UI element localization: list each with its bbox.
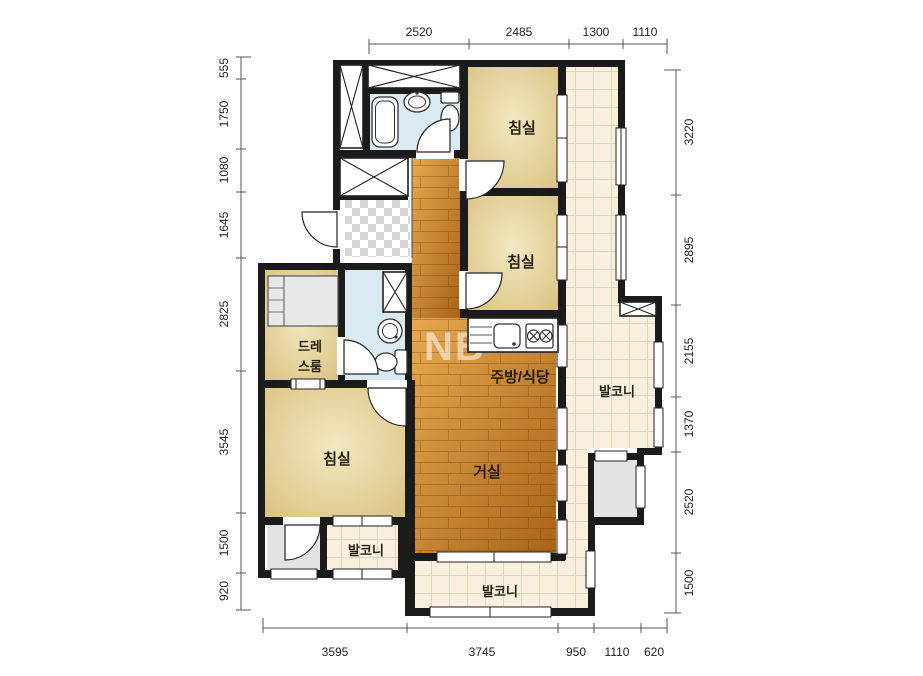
dim-bottom-3: 1110 bbox=[605, 645, 630, 659]
dim-top-1: 2485 bbox=[506, 25, 533, 39]
bathtub-icon bbox=[372, 97, 398, 147]
dim-top-2: 1300 bbox=[583, 25, 610, 39]
label-balcony-right: 발코니 bbox=[599, 384, 635, 399]
sink-top-icon bbox=[404, 91, 430, 112]
closet-balcony-right bbox=[620, 302, 656, 316]
closet-top bbox=[368, 65, 460, 88]
dim-left-5: 3545 bbox=[217, 428, 231, 455]
dim-bottom-4: 620 bbox=[644, 645, 664, 659]
balcony-right-wide bbox=[566, 302, 655, 448]
wardrobe-icon bbox=[268, 276, 338, 326]
hallway-plank-texture bbox=[412, 155, 460, 318]
dim-right-5: 1500 bbox=[682, 569, 696, 596]
dim-left-1: 1750 bbox=[217, 100, 231, 127]
utility-room-right bbox=[594, 460, 637, 517]
dim-left-3: 1645 bbox=[217, 211, 231, 238]
floor-plan-svg: NB bbox=[0, 0, 923, 676]
label-kitchen-dining: 주방/식당 bbox=[490, 368, 550, 386]
label-dressroom-2: 스룸 bbox=[298, 359, 322, 374]
dim-bottom-1: 3745 bbox=[469, 645, 496, 659]
floor-plan-page: NB bbox=[0, 0, 923, 676]
dim-bottom-2: 950 bbox=[566, 645, 586, 659]
dim-left-7: 920 bbox=[217, 581, 231, 601]
label-living-room: 거실 bbox=[473, 464, 501, 481]
label-bedroom-left: 침실 bbox=[323, 451, 351, 468]
label-balcony-bottom: 발코니 bbox=[482, 584, 518, 599]
door-front-entrance bbox=[302, 212, 337, 247]
label-balcony-left: 발코니 bbox=[348, 543, 384, 558]
label-bedroom-top: 침실 bbox=[508, 120, 536, 137]
sink-middle-icon bbox=[378, 319, 402, 343]
dim-top-0: 2520 bbox=[406, 25, 433, 39]
dim-right-1: 2895 bbox=[682, 236, 696, 263]
dim-left-0: 555 bbox=[217, 58, 231, 78]
label-bedroom-middle: 침실 bbox=[507, 254, 535, 271]
dim-right-4: 2520 bbox=[682, 488, 696, 515]
closet-bathroom-middle bbox=[383, 272, 407, 312]
dim-bottom-0: 3595 bbox=[322, 645, 349, 659]
kitchen-counter bbox=[468, 318, 558, 352]
balcony-right-upper bbox=[566, 67, 618, 302]
dim-left-6: 1500 bbox=[217, 529, 231, 556]
entry-floor bbox=[345, 200, 410, 257]
shoe-closet bbox=[340, 158, 408, 196]
closet-tall-left bbox=[340, 65, 363, 148]
label-dressroom-1: 드레 bbox=[298, 339, 322, 354]
dim-right-0: 3220 bbox=[682, 118, 696, 145]
dim-left-2: 1080 bbox=[217, 156, 231, 183]
dim-right-3: 1370 bbox=[682, 410, 696, 437]
dim-right-2: 2155 bbox=[682, 337, 696, 364]
dim-top-3: 1110 bbox=[633, 25, 658, 39]
balcony-right-lower-strip bbox=[566, 448, 588, 560]
stove-icon bbox=[526, 324, 553, 348]
kitchen-sink-icon bbox=[494, 324, 520, 348]
dim-left-4: 2825 bbox=[217, 300, 231, 327]
